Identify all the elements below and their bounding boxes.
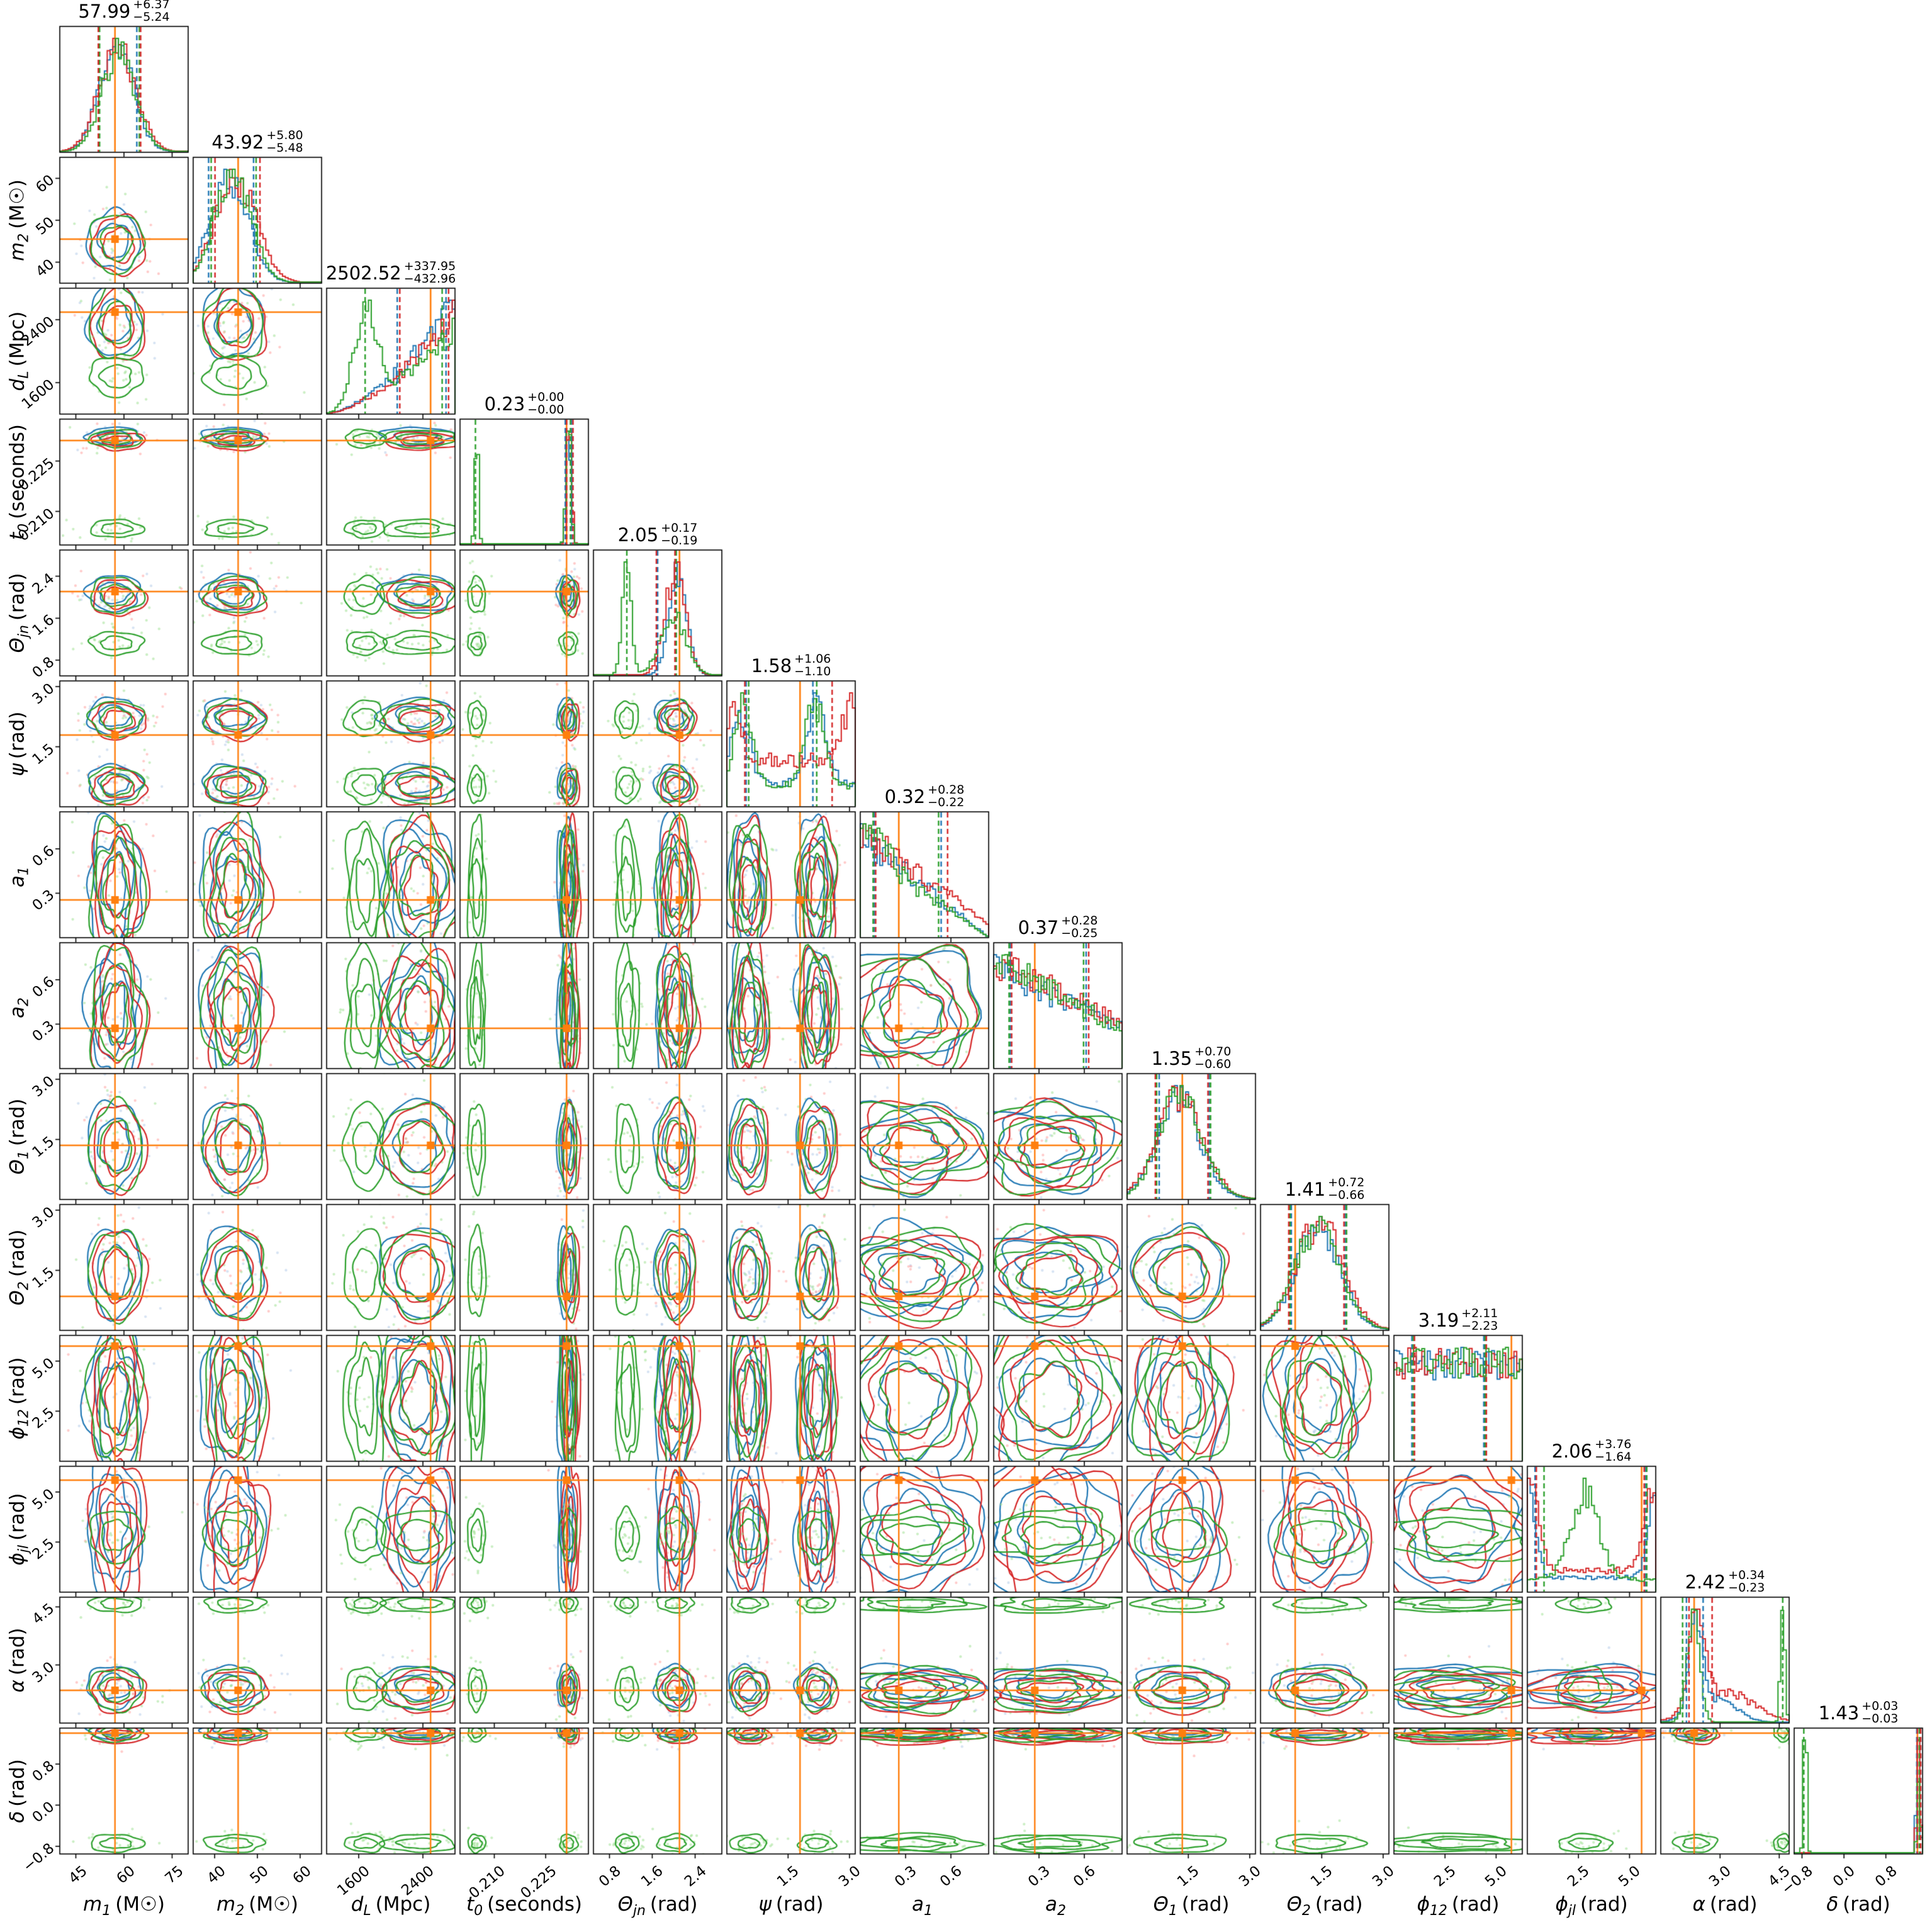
title-errors: +0.34−0.23: [1728, 1570, 1765, 1595]
title-median: 1.58: [751, 655, 792, 677]
title-errors: +0.03−0.03: [1862, 1700, 1898, 1726]
y-axis-label-phi12: ϕ12(rad): [6, 1357, 31, 1439]
y-axis-symbol: a: [6, 875, 28, 887]
x-axis-label-m2: m2(M☉): [193, 1893, 322, 1919]
x-axis-label-m1: m1(M☉): [60, 1893, 188, 1919]
title-minus-error: −5.48: [266, 142, 303, 155]
diagonal-title-alpha: 2.42+0.34−0.23: [1642, 1568, 1808, 1596]
title-plus-error: +0.03: [1862, 1700, 1898, 1713]
x-axis-label-phijl: ϕjl(rad): [1527, 1893, 1656, 1919]
title-median: 0.23: [485, 393, 525, 415]
y-axis-unit: (seconds): [6, 424, 28, 519]
x-axis-symbol: m: [216, 1893, 235, 1916]
y-axis-label-theta1: Θ1(rad): [6, 1098, 31, 1174]
title-plus-error: +0.28: [928, 784, 964, 797]
x-axis-subscript: jl: [1568, 1903, 1576, 1919]
title-minus-error: −0.19: [661, 535, 697, 548]
title-errors: +3.76−1.64: [1595, 1439, 1631, 1464]
diagonal-title-a1: 0.32+0.28−0.22: [841, 783, 1008, 811]
title-errors: +0.28−0.22: [928, 784, 964, 809]
y-axis-label-m2: m2(M☉): [6, 179, 31, 261]
y-axis-unit: (M☉): [6, 179, 28, 229]
x-axis-symbol: ϕ: [1555, 1893, 1568, 1916]
diagonal-title-phijl: 2.06+3.76−1.64: [1508, 1437, 1675, 1465]
y-axis-subscript: 2: [16, 1281, 32, 1290]
x-axis-symbol: m: [83, 1893, 102, 1916]
y-axis-subscript: 1: [16, 1150, 32, 1159]
title-minus-error: −0.60: [1194, 1059, 1231, 1071]
title-minus-error: −0.23: [1728, 1582, 1765, 1595]
x-axis-symbol: ϕ: [1417, 1893, 1429, 1916]
x-axis-subscript: 2: [235, 1903, 244, 1919]
x-axis-label-thetajn: Θjn(rad): [593, 1893, 722, 1919]
title-minus-error: −1.64: [1595, 1451, 1631, 1464]
y-axis-symbol: Θ: [6, 1159, 28, 1174]
x-axis-unit: (rad): [1710, 1893, 1758, 1916]
title-median: 0.37: [1018, 917, 1059, 938]
corner-plot-canvas: [0, 0, 1932, 1932]
x-axis-symbol: α: [1692, 1893, 1705, 1916]
diagonal-title-theta1: 1.35+0.70−0.60: [1108, 1045, 1274, 1072]
title-minus-error: −2.23: [1461, 1320, 1498, 1333]
x-axis-label-a1: a1: [860, 1893, 989, 1919]
x-axis-unit: (rad): [1580, 1893, 1628, 1916]
title-errors: +0.00−0.00: [527, 391, 564, 417]
title-median: 0.32: [885, 786, 926, 807]
x-axis-label-alpha: α(rad): [1661, 1893, 1789, 1919]
x-axis-symbol: a: [912, 1893, 924, 1916]
y-axis-unit: (rad): [6, 573, 28, 621]
y-axis-subscript: 1: [16, 867, 32, 875]
title-errors: +337.95−432.96: [404, 261, 456, 286]
y-axis-label-thetajn: Θjn(rad): [6, 573, 31, 653]
x-axis-label-psi: ψ(rad): [727, 1893, 855, 1919]
title-median: 2.42: [1685, 1571, 1726, 1593]
y-axis-label-dL: dL(Mpc): [6, 312, 31, 391]
title-errors: +2.11−2.23: [1461, 1308, 1498, 1333]
diagonal-title-delta: 1.43+0.03−0.03: [1775, 1699, 1932, 1727]
x-axis-subscript: 2: [1057, 1903, 1066, 1919]
diagonal-title-m1: 57.99+6.37−5.24: [41, 0, 207, 25]
title-plus-error: +0.34: [1728, 1570, 1765, 1582]
y-axis-label-theta2: Θ2(rad): [6, 1229, 31, 1305]
y-axis-unit: (rad): [6, 1357, 28, 1405]
y-axis-symbol: Θ: [6, 637, 28, 653]
x-axis-unit: (rad): [1843, 1893, 1890, 1916]
y-axis-symbol: ϕ: [6, 1427, 28, 1439]
x-axis-unit: (rad): [1452, 1893, 1500, 1916]
title-plus-error: +5.80: [266, 130, 303, 142]
corner-plot-figure: 57.99+6.37−5.24m1(M☉)45607543.92+5.80−5.…: [0, 0, 1932, 1932]
x-axis-subscript: 12: [1430, 1903, 1447, 1919]
x-axis-unit: (rad): [776, 1893, 824, 1916]
x-axis-symbol: δ: [1826, 1893, 1838, 1916]
y-axis-symbol: Θ: [6, 1290, 28, 1305]
y-axis-subscript: 2: [16, 997, 32, 1006]
title-plus-error: +0.28: [1061, 915, 1098, 928]
y-axis-symbol: d: [6, 379, 28, 391]
x-axis-symbol: a: [1045, 1893, 1057, 1916]
y-axis-unit: (rad): [6, 1759, 28, 1807]
y-axis-symbol: ψ: [6, 763, 28, 776]
title-errors: +6.37−5.24: [133, 0, 169, 24]
title-median: 1.35: [1152, 1048, 1193, 1069]
title-minus-error: −0.03: [1862, 1713, 1898, 1726]
y-axis-label-delta: δ(rad): [6, 1759, 31, 1823]
x-axis-label-delta: δ(rad): [1794, 1893, 1923, 1919]
x-axis-label-phi12: ϕ12(rad): [1394, 1893, 1522, 1919]
title-minus-error: −0.22: [928, 797, 964, 809]
title-plus-error: +0.70: [1194, 1046, 1231, 1059]
title-plus-error: +0.17: [661, 522, 697, 535]
title-errors: +0.28−0.25: [1061, 915, 1098, 940]
title-plus-error: +0.00: [527, 391, 564, 404]
y-axis-unit: (rad): [6, 1098, 28, 1146]
title-minus-error: −432.96: [404, 273, 456, 286]
x-axis-symbol: Θ: [617, 1893, 632, 1916]
diagonal-title-phi12: 3.19+2.11−2.23: [1375, 1306, 1541, 1334]
title-errors: +5.80−5.48: [266, 130, 303, 155]
x-axis-unit: (rad): [1182, 1893, 1230, 1916]
title-minus-error: −0.66: [1328, 1189, 1364, 1202]
title-minus-error: −0.00: [527, 404, 564, 417]
x-axis-symbol: Θ: [1153, 1893, 1168, 1916]
x-axis-label-theta1: Θ1(rad): [1127, 1893, 1255, 1919]
y-axis-subscript: jl: [16, 1545, 32, 1553]
y-axis-symbol: ϕ: [6, 1553, 28, 1565]
title-median: 2502.52: [326, 262, 402, 284]
x-axis-symbol: d: [351, 1893, 364, 1916]
diagonal-title-a2: 0.37+0.28−0.25: [975, 914, 1141, 941]
y-axis-label-a1: a1: [6, 862, 31, 887]
x-axis-label-theta2: Θ2(rad): [1261, 1893, 1389, 1919]
y-axis-symbol: m: [6, 242, 28, 261]
y-axis-unit: (rad): [6, 1627, 28, 1675]
title-minus-error: −1.10: [794, 666, 831, 678]
title-median: 1.43: [1819, 1702, 1860, 1724]
y-axis-label-phijl: ϕjl(rad): [6, 1493, 31, 1565]
title-plus-error: +337.95: [404, 261, 456, 273]
title-median: 2.06: [1552, 1441, 1593, 1462]
title-median: 43.92: [211, 132, 264, 153]
y-axis-label-alpha: α(rad): [6, 1627, 31, 1692]
x-axis-symbol: ψ: [758, 1893, 771, 1916]
y-axis-unit: (rad): [6, 1229, 28, 1277]
x-axis-subscript: 1: [102, 1903, 111, 1919]
x-axis-subscript: 0: [474, 1903, 483, 1919]
diagonal-title-m2: 43.92+5.80−5.48: [174, 128, 340, 156]
x-axis-subscript: L: [363, 1903, 371, 1919]
title-minus-error: −0.25: [1061, 928, 1098, 940]
y-axis-label-psi: ψ(rad): [6, 711, 31, 776]
y-axis-unit: (rad): [6, 711, 28, 759]
title-median: 1.41: [1285, 1179, 1326, 1200]
y-axis-subscript: 12: [16, 1409, 32, 1427]
title-errors: +0.72−0.66: [1328, 1177, 1364, 1202]
x-axis-subscript: 1: [1169, 1903, 1177, 1919]
title-plus-error: +2.11: [1461, 1308, 1498, 1320]
title-median: 3.19: [1418, 1310, 1459, 1331]
x-axis-subscript: jn: [633, 1903, 646, 1919]
x-axis-unit: (M☉): [115, 1893, 165, 1916]
y-axis-subscript: L: [16, 371, 32, 378]
y-axis-symbol: a: [6, 1006, 28, 1018]
x-axis-subscript: 2: [1302, 1903, 1311, 1919]
x-axis-unit: (rad): [1315, 1893, 1363, 1916]
title-plus-error: +1.06: [794, 653, 831, 666]
title-errors: +1.06−1.10: [794, 653, 831, 678]
title-median: 57.99: [78, 1, 130, 22]
y-axis-unit: (rad): [6, 1493, 28, 1541]
x-axis-unit: (rad): [650, 1893, 698, 1916]
y-axis-symbol: α: [6, 1680, 28, 1692]
title-errors: +0.17−0.19: [661, 522, 697, 548]
diagonal-title-t0: 0.23+0.00−0.00: [441, 390, 607, 418]
diagonal-title-theta2: 1.41+0.72−0.66: [1242, 1176, 1408, 1203]
title-plus-error: +3.76: [1595, 1439, 1631, 1451]
x-axis-unit: (M☉): [249, 1893, 298, 1916]
x-axis-subscript: 1: [924, 1903, 933, 1919]
y-axis-symbol: δ: [6, 1811, 28, 1823]
y-axis-subscript: 2: [16, 233, 32, 242]
x-axis-label-a2: a2: [994, 1893, 1122, 1919]
diagonal-title-thetajn: 2.05+0.17−0.19: [575, 521, 741, 549]
diagonal-title-dL: 2502.52+337.95−432.96: [308, 259, 474, 287]
x-axis-symbol: Θ: [1286, 1893, 1301, 1916]
title-plus-error: +0.72: [1328, 1177, 1364, 1189]
title-median: 2.05: [618, 524, 659, 546]
x-axis-unit: (Mpc): [376, 1893, 431, 1916]
diagonal-title-psi: 1.58+1.06−1.10: [708, 652, 874, 680]
title-errors: +0.70−0.60: [1194, 1046, 1231, 1071]
y-axis-label-a2: a2: [6, 993, 31, 1018]
title-minus-error: −5.24: [133, 11, 169, 24]
